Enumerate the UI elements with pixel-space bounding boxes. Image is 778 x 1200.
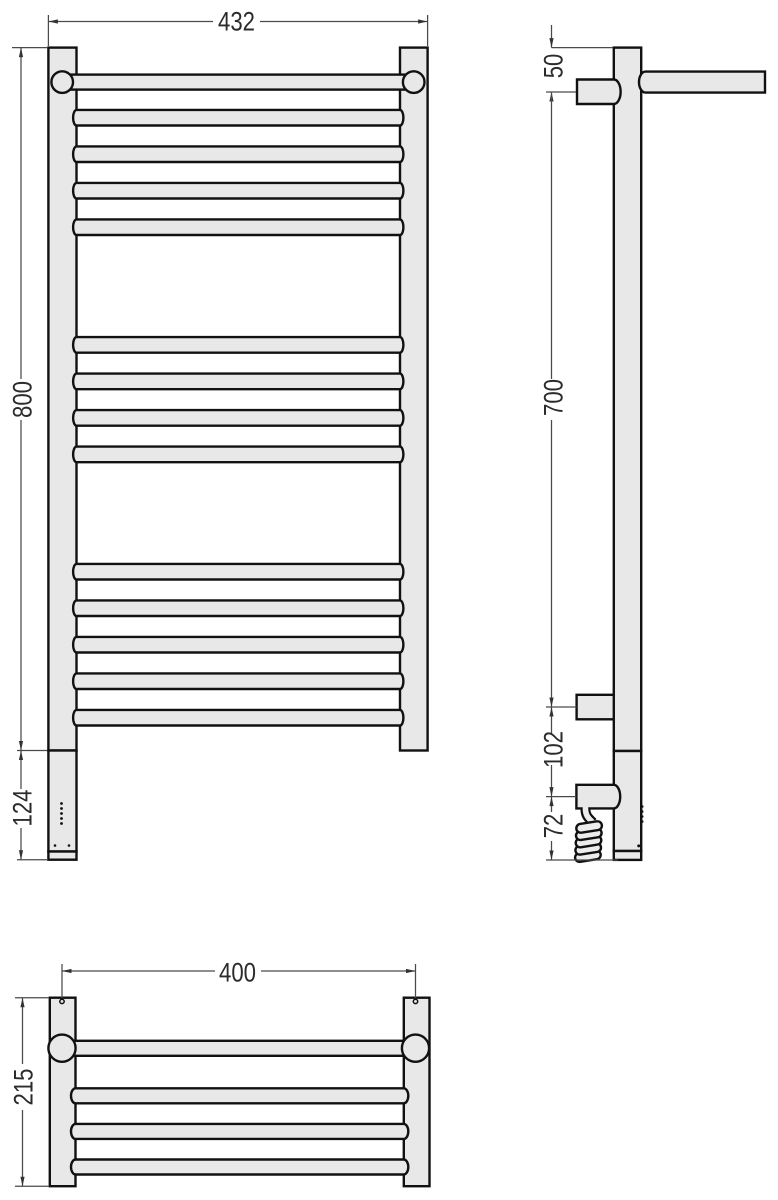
svg-text:800: 800 (8, 381, 38, 418)
svg-text:102: 102 (538, 731, 568, 768)
svg-text:215: 215 (8, 1069, 38, 1106)
svg-text:400: 400 (219, 958, 256, 988)
svg-text:700: 700 (538, 379, 568, 416)
svg-text:432: 432 (218, 7, 255, 37)
svg-text:72: 72 (538, 814, 568, 839)
svg-text:124: 124 (8, 790, 38, 827)
svg-text:50: 50 (538, 54, 568, 79)
